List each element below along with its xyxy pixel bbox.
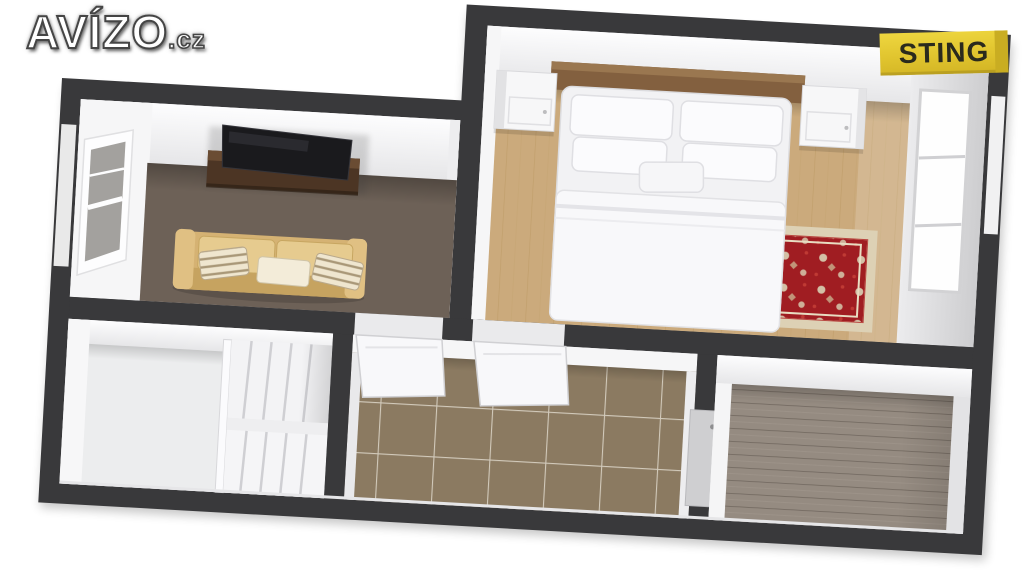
bed-pillow-small: [639, 162, 703, 192]
sting-badge: STING: [879, 30, 1008, 75]
living-room-window: [77, 127, 133, 277]
bed-pillow: [679, 101, 783, 147]
bed-pillow: [570, 94, 674, 140]
floor-plan-render: [0, 0, 1024, 576]
sofa-pillow: [256, 256, 310, 287]
staircase: [215, 339, 332, 498]
living-room: [70, 99, 460, 318]
staircase-hall: [59, 319, 333, 499]
sofa: [172, 229, 367, 308]
corridor: [344, 335, 698, 519]
real-estate-floorplan-image: AVÍZO.cz STING: [0, 0, 1024, 576]
sofa-pillow: [198, 247, 249, 280]
avizo-logo: AVÍZO.cz: [26, 6, 206, 58]
open-door-bedroom: [470, 341, 571, 410]
sting-badge-label: STING: [898, 31, 990, 75]
nightstand-right: [799, 85, 867, 153]
nightstand-left: [494, 70, 557, 136]
tv-wall-unit: [206, 124, 369, 196]
bedroom-window: [910, 90, 971, 292]
open-door-living-room: [353, 335, 448, 402]
avizo-logo-brand-text: AVÍZO: [26, 6, 168, 58]
back-room: [708, 355, 972, 534]
sting-badge-fold: [994, 30, 1008, 72]
double-bed: [537, 61, 805, 333]
avizo-logo-tld-text: .cz: [168, 24, 206, 54]
floor-plan: [38, 0, 1015, 560]
